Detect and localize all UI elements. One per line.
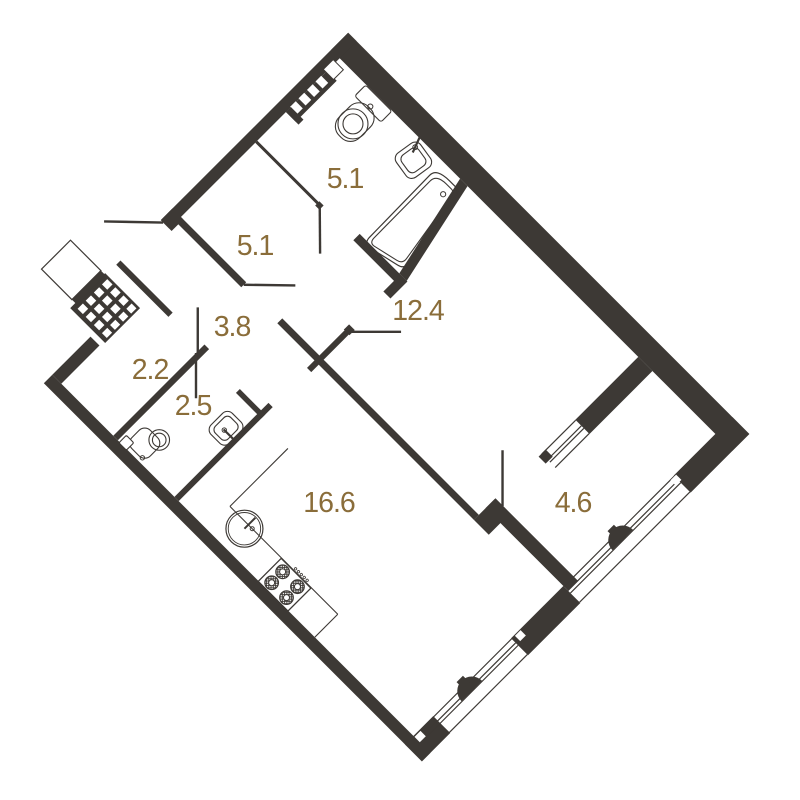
svg-text:2.2: 2.2 bbox=[132, 354, 169, 386]
svg-text:12.4: 12.4 bbox=[392, 295, 445, 327]
svg-text:2.5: 2.5 bbox=[175, 390, 212, 422]
svg-text:5.1: 5.1 bbox=[327, 163, 364, 195]
svg-text:4.6: 4.6 bbox=[555, 487, 592, 519]
svg-text:16.6: 16.6 bbox=[303, 487, 355, 519]
svg-text:5.1: 5.1 bbox=[237, 230, 274, 262]
svg-text:3.8: 3.8 bbox=[214, 311, 251, 343]
